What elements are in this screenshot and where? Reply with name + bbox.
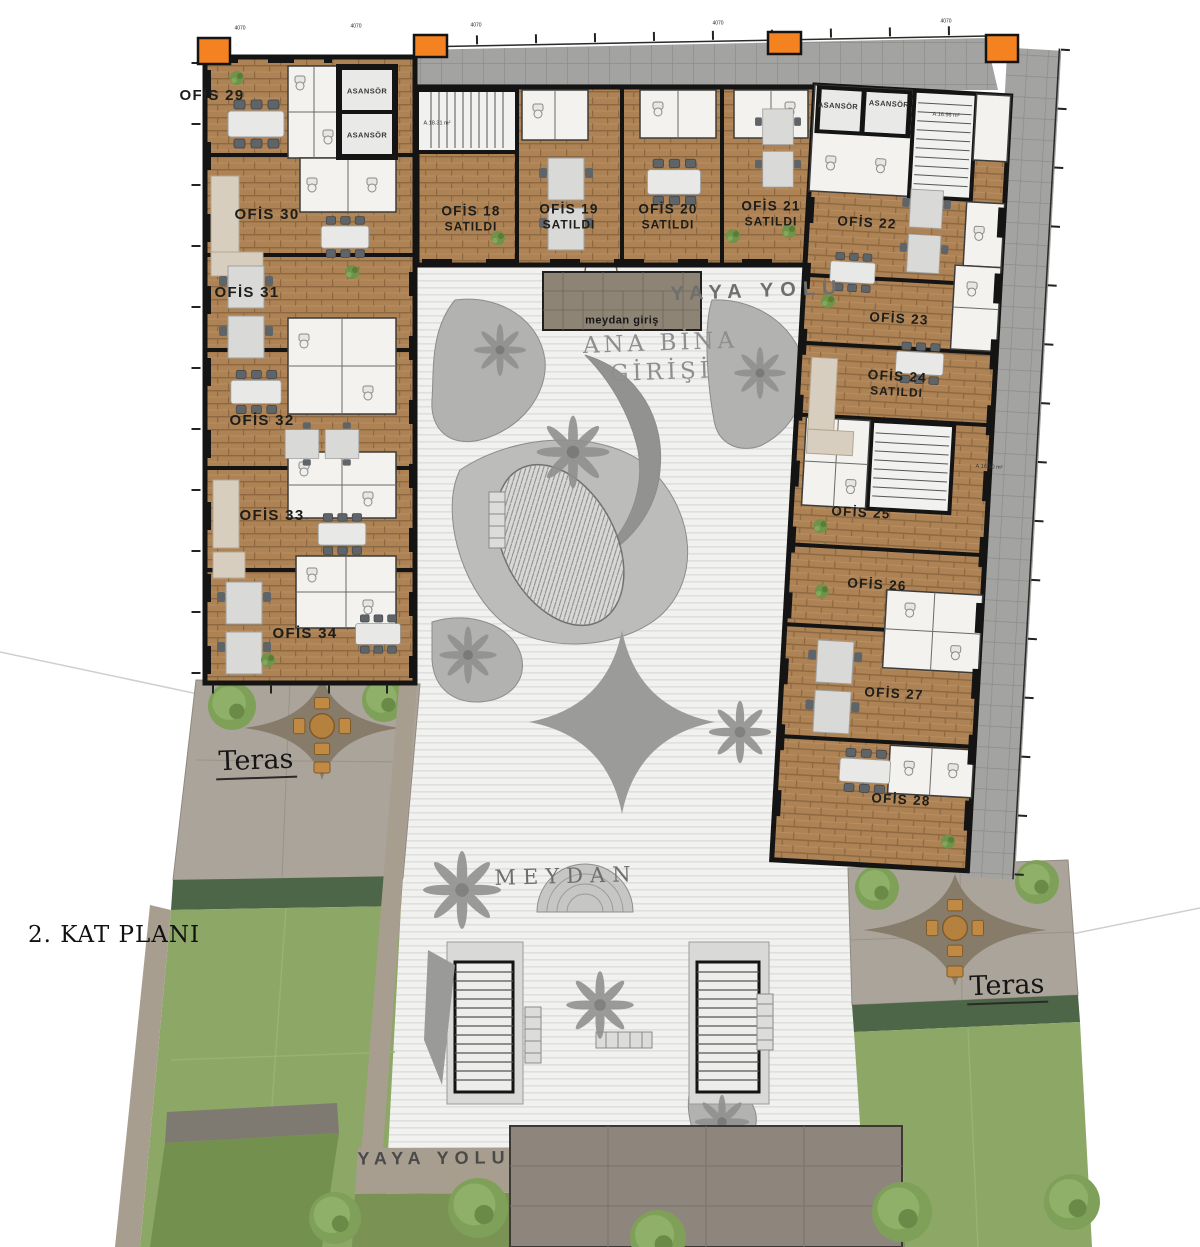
page-title: 2. KAT PLANI [28, 922, 200, 948]
top-wing [417, 87, 818, 265]
floorplan-drawing [0, 0, 1200, 1247]
right-wing [771, 35, 1065, 880]
office-label-ofis-30: OFİS 30 [235, 206, 300, 224]
office-label-ofis-18: OFİS 18SATILDI [441, 204, 500, 235]
teras-right-label: Teras [966, 969, 1048, 1006]
office-label-ofis-31: OFİS 31 [215, 284, 280, 302]
elevator-label-2: ASANSÖR [347, 131, 387, 139]
yaya-yolu-bottom-label: YAYA YOLU [357, 1148, 510, 1167]
teras-left-label: Teras [215, 744, 297, 781]
meydan-label: MEYDAN [494, 862, 638, 890]
dimension-label: 4070 [234, 27, 245, 32]
meydan-giris-label: meydan giriş [585, 316, 659, 327]
left-wing [196, 57, 415, 689]
stair-area-label-1: A.18.31 m² [424, 121, 451, 127]
office-label-ofis-19: OFİS 19SATILDI [539, 202, 598, 233]
office-label-ofis-25: OFİS 25 [831, 503, 891, 522]
office-label-ofis-24: OFİS 24SATILDI [867, 367, 928, 401]
office-label-ofis-20: OFİS 20SATILDI [638, 202, 697, 233]
office-label-ofis-28: OFİS 28 [871, 790, 931, 809]
elevator-label-3: ASANSÖR [818, 101, 859, 111]
office-label-ofis-23: OFİS 23 [869, 309, 929, 328]
stairwell-mid-right [867, 421, 954, 513]
elevator-label-4: ASANSÖR [869, 99, 910, 109]
elevator-block-left [336, 64, 398, 160]
dimension-label: 4070 [350, 25, 361, 30]
floor-plan-page: 2. KAT PLANI MEYDAN ANA BİNA GİRİŞİ meyd… [0, 0, 1200, 1247]
office-label-ofis-22: OFİS 22 [837, 213, 897, 232]
office-label-ofis-27: OFİS 27 [864, 684, 924, 703]
office-label-ofis-32: OFİS 32 [230, 412, 295, 430]
office-label-ofis-29: OFİS 29 [180, 87, 245, 105]
stairwell-top-right [909, 91, 977, 200]
office-label-ofis-21: OFİS 21SATILDI [741, 199, 800, 230]
hedge-left [171, 876, 403, 910]
office-label-ofis-26: OFİS 26 [847, 575, 907, 594]
dimension-label: 4070 [940, 20, 951, 25]
dimension-label: 4070 [712, 22, 723, 27]
dimension-label: 4070 [470, 24, 481, 29]
office-label-ofis-33: OFİS 33 [240, 507, 305, 525]
elevator-label-1: ASANSÖR [347, 87, 387, 95]
ana-bina-girisi-label: ANA BİNA GİRİŞİ [582, 327, 739, 390]
office-label-ofis-34: OFİS 34 [273, 625, 338, 643]
